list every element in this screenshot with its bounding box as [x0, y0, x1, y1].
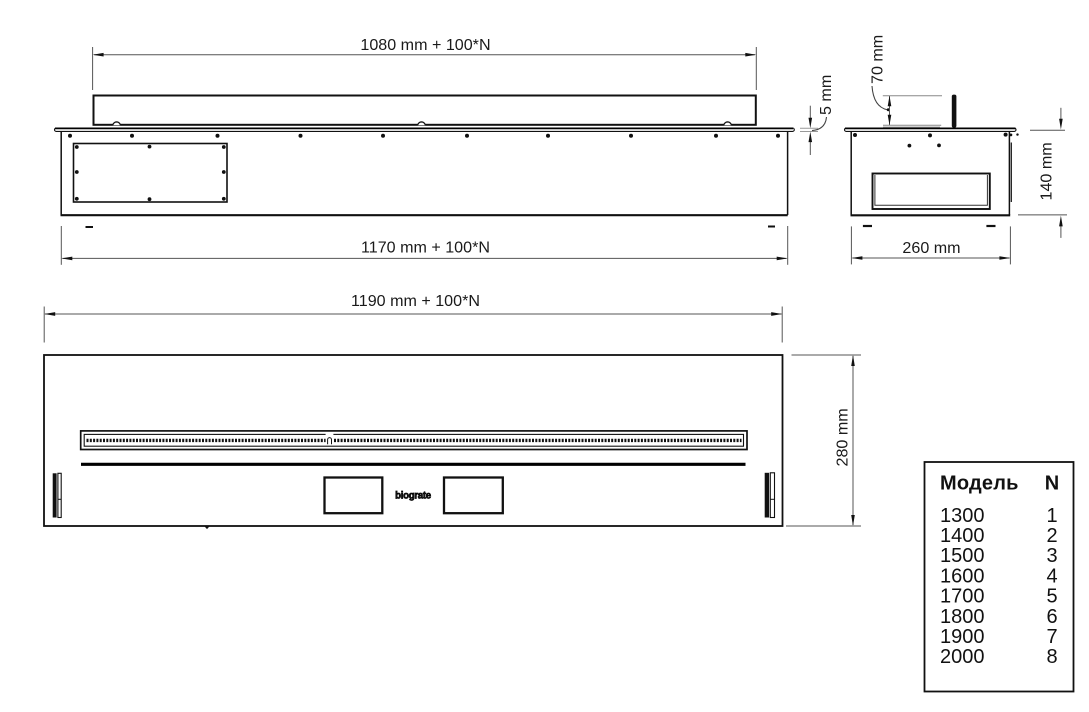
- svg-text:3: 3: [1046, 545, 1057, 567]
- svg-text:140 mm: 140 mm: [1038, 142, 1056, 200]
- svg-text:1900: 1900: [940, 626, 985, 648]
- svg-text:260 mm: 260 mm: [902, 239, 960, 257]
- svg-text:1400: 1400: [940, 525, 985, 547]
- svg-text:1170 mm + 100*N: 1170 mm + 100*N: [361, 239, 490, 257]
- svg-text:6: 6: [1046, 606, 1057, 628]
- svg-text:1190 mm + 100*N: 1190 mm + 100*N: [351, 292, 480, 310]
- svg-text:8: 8: [1046, 646, 1057, 668]
- svg-text:Модель: Модель: [940, 473, 1019, 495]
- svg-text:1500: 1500: [940, 545, 985, 567]
- svg-text:280 mm: 280 mm: [834, 408, 852, 466]
- svg-text:7: 7: [1046, 626, 1057, 648]
- svg-text:5: 5: [1046, 586, 1057, 608]
- svg-text:N: N: [1045, 473, 1059, 495]
- svg-text:1300: 1300: [940, 505, 985, 527]
- svg-text:1800: 1800: [940, 606, 985, 628]
- svg-text:1: 1: [1046, 505, 1057, 527]
- svg-text:4: 4: [1046, 565, 1057, 587]
- svg-text:1600: 1600: [940, 565, 985, 587]
- svg-text:1080 mm + 100*N: 1080 mm + 100*N: [360, 36, 490, 54]
- svg-text:70 mm: 70 mm: [869, 35, 887, 84]
- svg-text:5 mm: 5 mm: [817, 75, 835, 115]
- svg-text:biograte: biograte: [395, 491, 432, 502]
- svg-text:2: 2: [1046, 525, 1057, 547]
- svg-text:1700: 1700: [940, 586, 985, 608]
- svg-text:2000: 2000: [940, 646, 985, 668]
